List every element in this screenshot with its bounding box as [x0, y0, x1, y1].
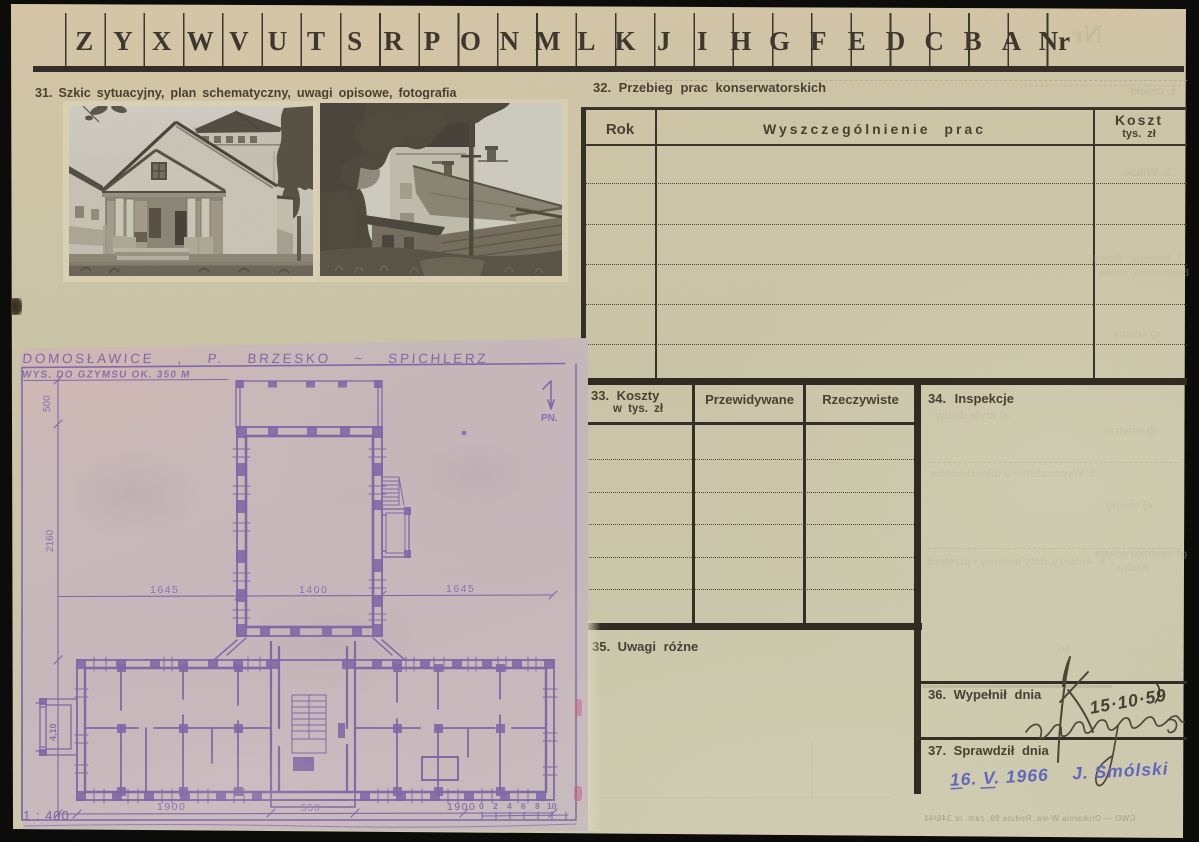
svg-text:1645: 1645 [446, 583, 475, 595]
svg-text:PN.: PN. [541, 413, 558, 424]
svg-text:1645: 1645 [150, 584, 179, 596]
svg-text:4,10: 4,10 [48, 723, 58, 741]
svg-text:16. V. 1966 J. Smólski: 16. V. 1966 J. Smólski [949, 758, 1169, 789]
svg-text:2: 2 [493, 801, 498, 811]
svg-text:0: 0 [479, 801, 484, 811]
svg-text:1900: 1900 [157, 801, 186, 813]
svg-text:6: 6 [521, 801, 526, 811]
svg-text:4: 4 [507, 801, 512, 811]
svg-text:1900: 1900 [447, 801, 476, 813]
svg-text:1400: 1400 [299, 584, 328, 596]
svg-text:8: 8 [535, 801, 540, 811]
svg-text:550: 550 [301, 803, 321, 814]
svg-text:500: 500 [42, 395, 53, 412]
svg-text:DOMOSŁAWICE , P. BRZESKO ~: DOMOSŁAWICE , P. BRZESKO ~ SPICHLERZ [22, 351, 489, 366]
svg-text:WYS. DO GZYMSU OK. 350 M: WYS. DO GZYMSU OK. 350 M [21, 370, 191, 381]
svg-text:1 : 400: 1 : 400 [23, 808, 70, 823]
svg-text:2160: 2160 [45, 529, 56, 552]
svg-text:10: 10 [547, 801, 557, 811]
